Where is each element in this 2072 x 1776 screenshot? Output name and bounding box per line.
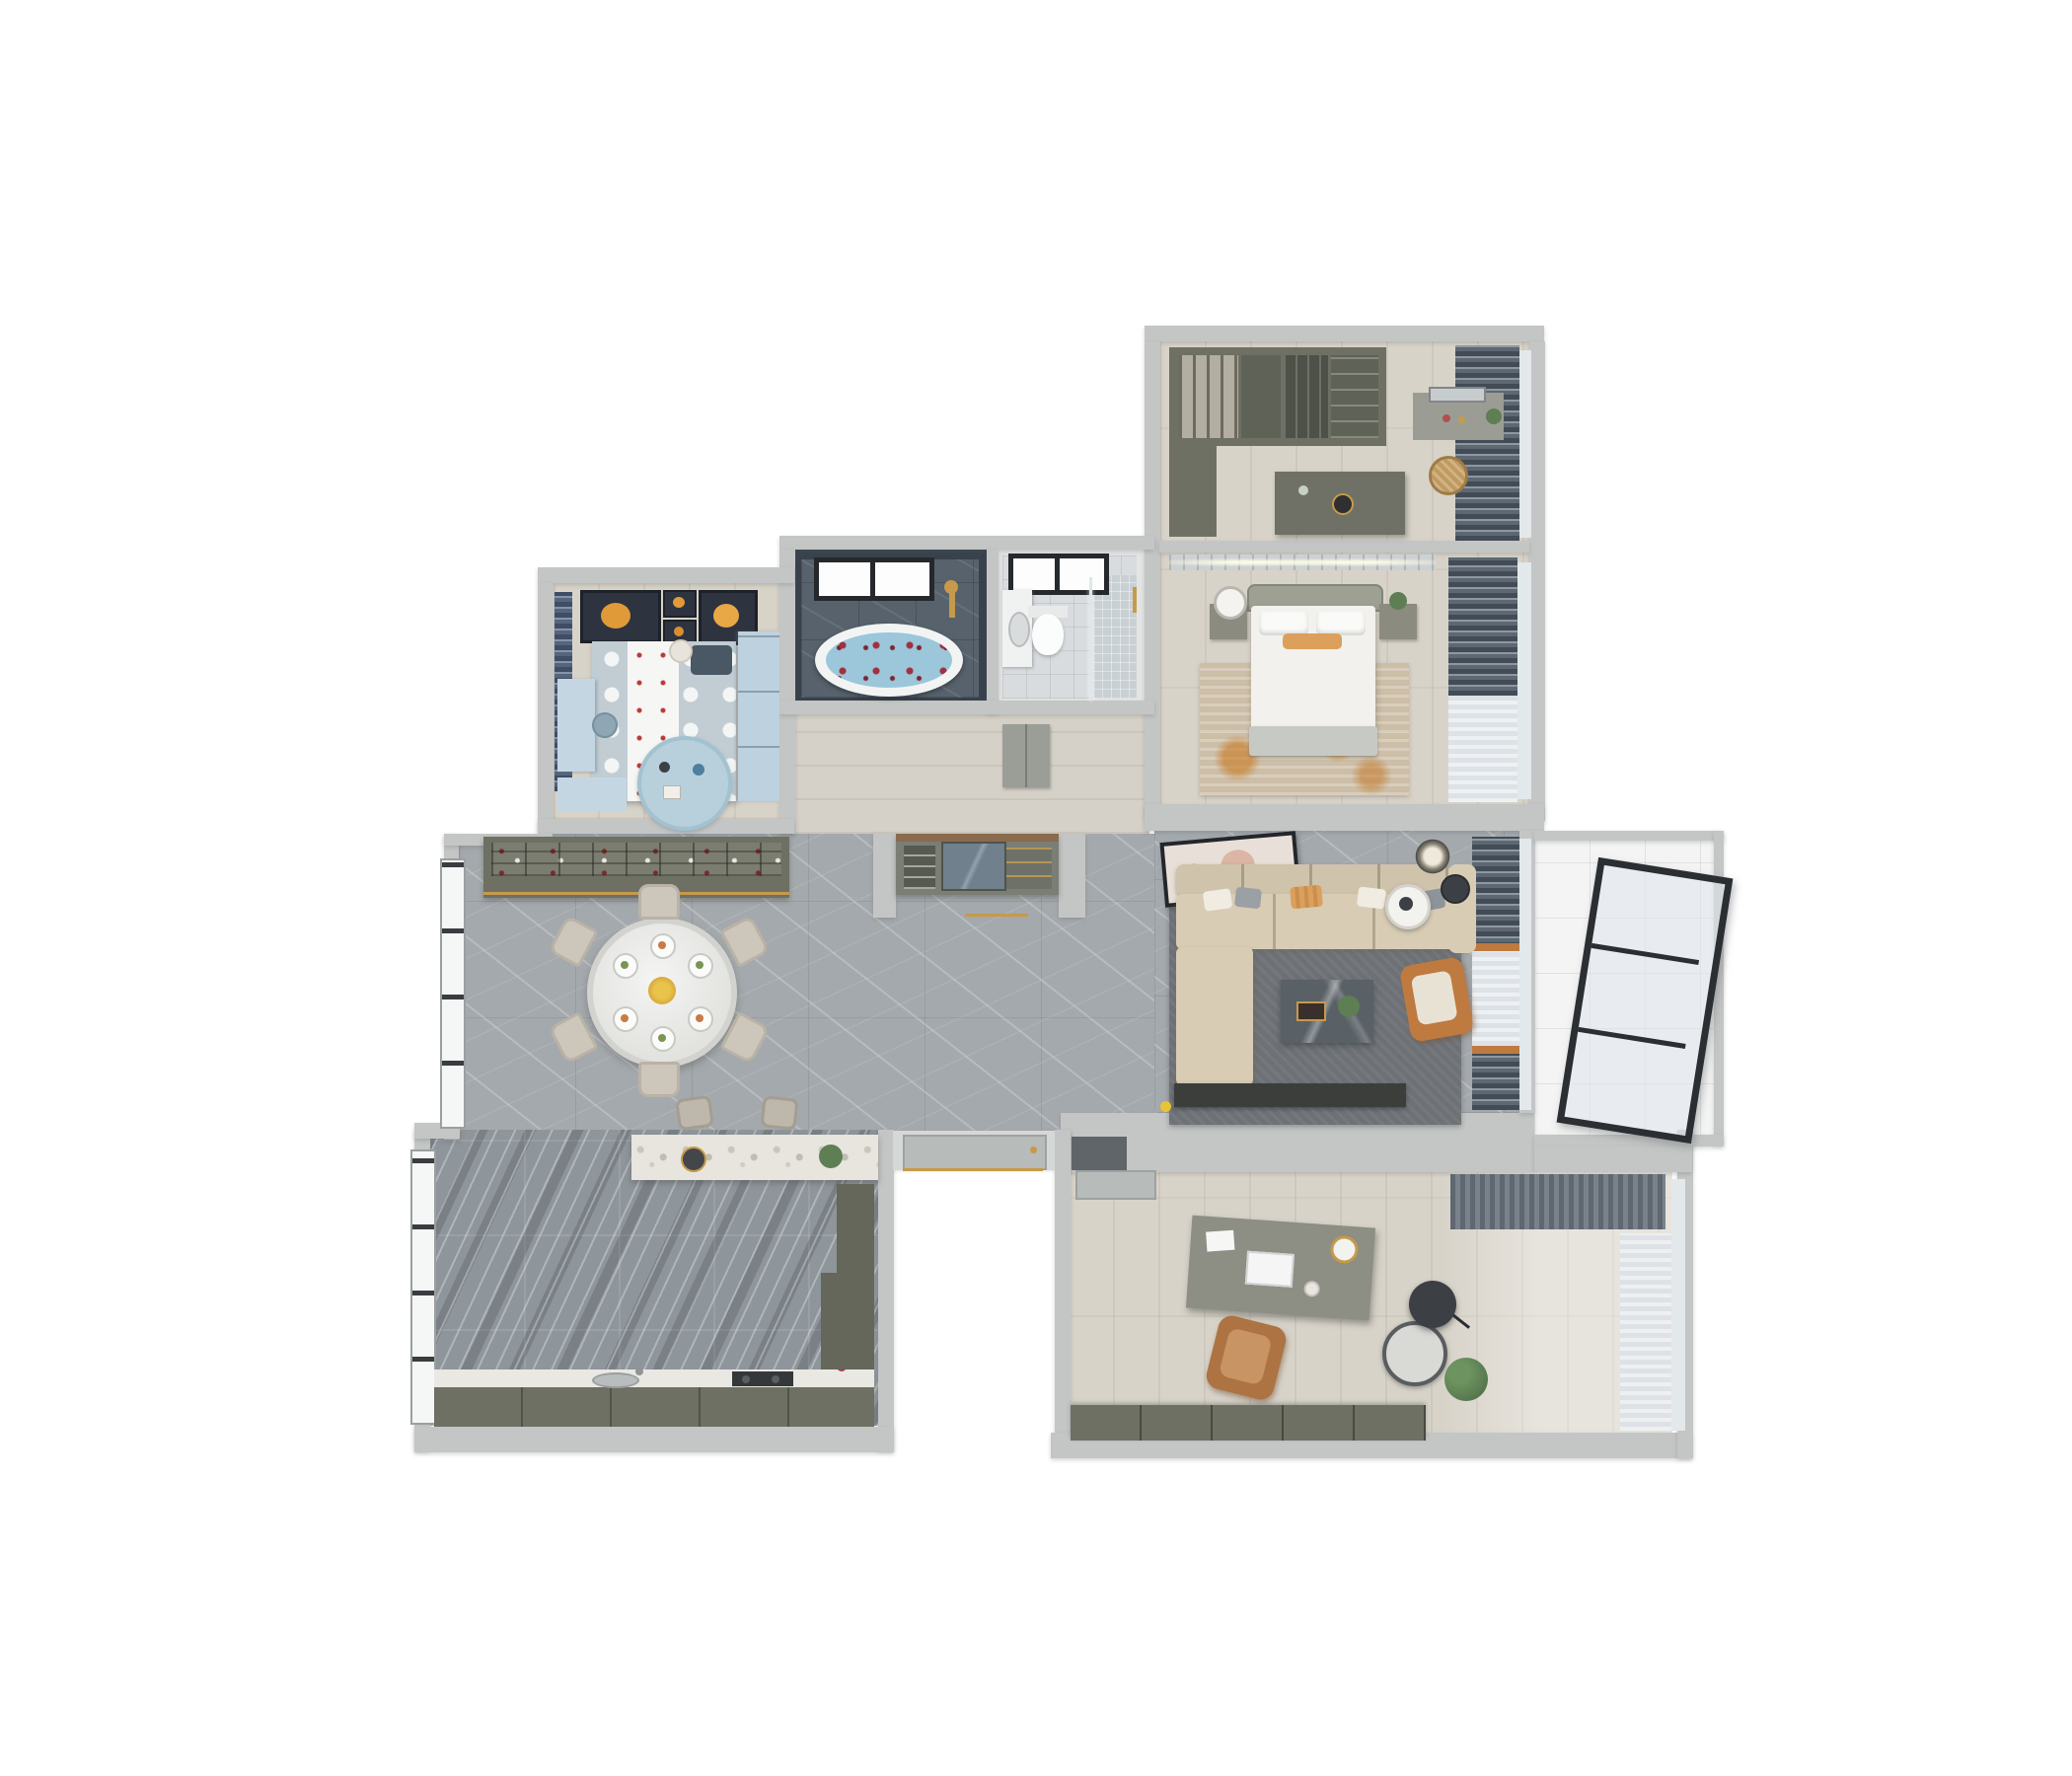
study-door-leaf: [1075, 1170, 1156, 1200]
gold-towel-bar: [1133, 587, 1137, 613]
closet-laundry-basket: [1429, 456, 1468, 495]
kids-left-wall: [538, 583, 554, 834]
orange-armchair: [1399, 956, 1475, 1043]
kitchen-tall-cabinet-upper: [837, 1184, 874, 1273]
place-setting-s: [650, 1026, 676, 1052]
pillow-gray-1: [1234, 887, 1262, 910]
place-setting-ne: [688, 953, 713, 979]
food-n: [658, 941, 666, 949]
round-dining-table: [587, 918, 737, 1068]
bathroom-window: [814, 557, 934, 601]
wardrobe-glass-section: [1284, 355, 1328, 438]
kitchen-window: [410, 1149, 436, 1425]
corridor-linen-cabinet: [1002, 724, 1050, 787]
dresser-flower-vase: [1298, 485, 1308, 495]
door-mullion-2: [1578, 1027, 1685, 1049]
side-table: [1385, 884, 1431, 929]
vanity-perfume-gold: [1458, 416, 1465, 423]
kids-bed-pillow: [691, 645, 732, 675]
side-table-bowl: [1399, 897, 1413, 911]
console-mirror: [941, 842, 1006, 891]
living-curtain-top: [1472, 837, 1519, 947]
living-curtain-rod-accent-top: [1472, 943, 1519, 951]
kids-art-planet: [601, 603, 630, 629]
console-niche-right-column: [1059, 834, 1085, 918]
place-setting-nw: [613, 953, 638, 979]
food-se: [696, 1014, 703, 1022]
kitchen-tall-cabinet-lower: [821, 1273, 874, 1369]
food-sw: [621, 1014, 629, 1022]
gold-threshold: [903, 1168, 1043, 1171]
tv-console: [1174, 1083, 1406, 1107]
kids-art-moon: [713, 604, 739, 628]
kids-round-play-rug: [637, 736, 732, 831]
desk-papers: [1206, 1230, 1234, 1252]
balcony-bottom-wall: [1534, 1135, 1724, 1147]
vanity-perfume-red: [1443, 414, 1450, 422]
study-pleated-curtain: [1450, 1174, 1665, 1229]
shower-room-vanity: [1002, 590, 1032, 667]
bar-stool-2: [760, 1095, 798, 1131]
bedroom-curtains: [1448, 557, 1517, 696]
study-window-glass: [1671, 1179, 1685, 1431]
kitchen-bottom-outer-wall: [414, 1427, 894, 1452]
bathroom-window-mullion: [870, 562, 875, 596]
console-wood-top: [896, 834, 1059, 842]
bed-orange-lumbar-pillow: [1283, 633, 1342, 649]
double-bed: [1251, 584, 1375, 758]
bar-stool-1: [675, 1095, 714, 1132]
study-writing-desk: [1186, 1216, 1375, 1321]
entry-door-leaf: [903, 1135, 1047, 1170]
nightstand-plant: [1389, 592, 1407, 610]
gold-floor-inlay: [965, 914, 1028, 917]
corridor-top-wall: [779, 701, 1154, 714]
closet-wardrobe-run: [1169, 347, 1386, 446]
kitchen-countertop: [434, 1369, 874, 1387]
wardrobe-door-section: [1241, 355, 1281, 438]
study-door-mat: [1072, 1137, 1127, 1170]
bedroom-sheer-curtain: [1448, 696, 1517, 802]
kids-top-wall: [538, 567, 794, 583]
console-shoe-shelves: [904, 846, 935, 889]
ring-ceiling-light: [1413, 837, 1452, 876]
kitchen-faucet: [635, 1368, 643, 1375]
console-niche-left-column: [873, 834, 896, 918]
bed-pillow-left: [1259, 612, 1308, 635]
shower-room-window-mullion: [1055, 558, 1060, 590]
kitchen-right-wall: [878, 1130, 894, 1450]
bath-block-top-wall: [779, 536, 1154, 550]
living-window-glass: [1517, 839, 1531, 1110]
freestanding-bathtub: [815, 624, 963, 697]
kids-desk-chair: [592, 712, 618, 738]
closet-window-glass: [1517, 350, 1531, 538]
closet-bedroom-right-wall: [1529, 341, 1545, 821]
table-lamp: [1214, 586, 1247, 620]
bath-kids-shared-wall: [779, 550, 795, 834]
dresser-perfume-tray: [1332, 493, 1354, 515]
living-sheer-curtain: [1472, 951, 1519, 1050]
desk-cup: [1303, 1281, 1320, 1297]
console-drawers: [1006, 848, 1052, 889]
dining-window: [440, 858, 466, 1129]
closet-curtains: [1455, 345, 1519, 541]
bath-toilet-divider-wall: [987, 550, 999, 712]
closet-wardrobe-left-column: [1169, 446, 1217, 537]
shower-glass-screen: [1089, 577, 1092, 701]
dining-chair-s: [638, 1062, 680, 1097]
gas-cooktop: [732, 1371, 793, 1386]
laptop: [1245, 1251, 1295, 1288]
wardrobe-open-section: [1179, 355, 1238, 438]
island-serving-tray: [681, 1147, 706, 1172]
coffee-table: [1281, 980, 1373, 1043]
closet-vanity-table: [1413, 393, 1504, 440]
entry-console: [896, 834, 1059, 895]
burner-2: [772, 1375, 779, 1383]
wine-sideboard: [483, 837, 789, 898]
wardrobe-shelf-section: [1331, 355, 1378, 438]
dining-chair-n: [638, 884, 680, 920]
study-low-bookcase: [1071, 1405, 1426, 1441]
arc-floor-lamp-shade: [1409, 1281, 1456, 1328]
burner-1: [742, 1375, 750, 1383]
kids-wall-art-large: [580, 590, 661, 643]
vanity-plant: [1486, 408, 1502, 424]
sideboard-gold-trim: [483, 892, 789, 895]
food-nw: [621, 961, 629, 969]
bathtub-water: [826, 632, 952, 688]
toy-blue: [693, 764, 704, 776]
bedroom-window-glass: [1517, 562, 1531, 799]
kids-art-planet-small-2: [674, 627, 684, 636]
closet-top-wall: [1145, 326, 1544, 341]
kids-wall-art-small-1: [663, 590, 697, 618]
shower-room-window: [1008, 554, 1109, 595]
vanity-mirror: [1429, 387, 1486, 403]
suite-corridor-floor: [784, 712, 1149, 834]
kids-study-desk: [557, 679, 595, 772]
pillow-white-1: [1203, 888, 1233, 912]
island-plant: [819, 1145, 843, 1168]
floor-plan-render: [0, 0, 2072, 1776]
kitchen-base-cabinets: [434, 1387, 874, 1427]
living-floor-lamp: [1441, 874, 1470, 904]
kids-art-planet-small: [673, 597, 685, 608]
door-mullion-1: [1591, 943, 1699, 965]
entry-notch-right-wall: [1055, 1130, 1071, 1450]
sofa-chaise: [1176, 947, 1253, 1085]
vanity-sink-basin: [1008, 612, 1030, 647]
office-chair-cushion: [1219, 1327, 1273, 1385]
place-setting-sw: [613, 1006, 638, 1032]
pillow-white-2: [1357, 886, 1386, 909]
sideboard-shelves: [491, 843, 781, 876]
toy-zebra: [659, 762, 670, 773]
kids-window-bench: [557, 777, 627, 811]
desk-lamp: [1330, 1235, 1360, 1265]
lounge-chair: [1382, 1321, 1447, 1386]
kids-wardrobe: [738, 631, 779, 801]
food-ne: [696, 961, 703, 969]
food-s: [658, 1034, 666, 1042]
place-setting-n: [650, 933, 676, 959]
bedroom-living-wall: [1145, 804, 1544, 831]
bed-pillow-right: [1316, 612, 1366, 635]
armchair-cushion: [1411, 970, 1458, 1025]
closet-island-dresser: [1275, 472, 1405, 535]
study-potted-plant: [1444, 1358, 1488, 1401]
gold-shower-head: [944, 580, 958, 594]
kitchen-island-bar: [631, 1135, 878, 1180]
closet-bedroom-divider-wall: [1159, 541, 1529, 553]
toy-duck: [1160, 1101, 1171, 1112]
study-topright-wall: [1534, 1147, 1692, 1172]
teddy-bear: [669, 639, 693, 663]
study-sheer-curtain: [1620, 1233, 1671, 1431]
flower-centerpiece: [648, 977, 676, 1004]
coffee-table-tray: [1296, 1001, 1326, 1021]
toy-book: [663, 785, 681, 799]
bedroom-headboard-wall-panel: [1169, 555, 1436, 570]
bed-foot-blanket: [1249, 726, 1377, 756]
entry-door-handle: [1030, 1147, 1037, 1153]
place-setting-se: [688, 1006, 713, 1032]
pillow-orange-striped: [1290, 885, 1323, 910]
toilet-bowl: [1032, 614, 1064, 655]
closet-bedroom-left-wall: [1145, 341, 1160, 821]
living-curtain-rod-accent-bottom: [1472, 1046, 1519, 1054]
kitchen-sink: [592, 1372, 639, 1388]
balcony-top-wall: [1534, 831, 1724, 841]
coffee-table-plant: [1338, 996, 1360, 1017]
living-curtain-bottom: [1472, 1054, 1519, 1110]
